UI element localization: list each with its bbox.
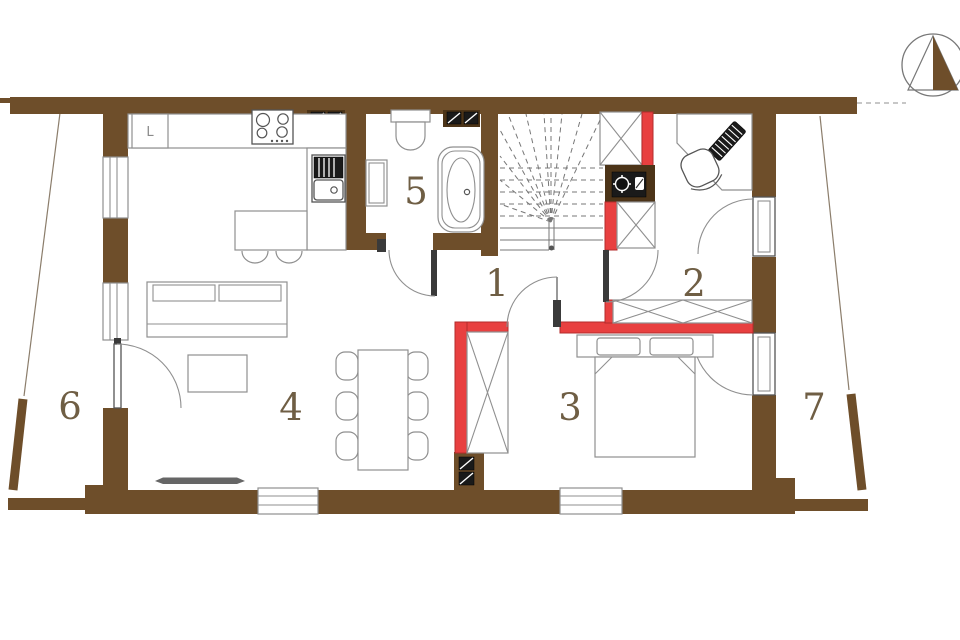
bathroom-door xyxy=(389,250,437,296)
north-arrow-icon xyxy=(902,34,960,96)
dining-chair xyxy=(336,352,358,380)
dining-table xyxy=(358,350,408,470)
dining-set xyxy=(336,350,428,470)
dining-chair xyxy=(406,392,428,420)
vent-block-bottom xyxy=(454,452,484,490)
bathroom-door-leaf xyxy=(431,250,437,296)
dining-chair xyxy=(406,432,428,460)
right-wall-lower xyxy=(752,395,776,478)
living-dining-area xyxy=(147,282,428,484)
bed-body xyxy=(595,357,695,457)
left-wall-lower xyxy=(103,408,128,490)
dining-chair xyxy=(336,432,358,460)
window-left-lower xyxy=(103,283,128,340)
door-jamb xyxy=(553,300,561,327)
door-hall-to-bedroom3 xyxy=(507,277,561,327)
dining-chair xyxy=(336,392,358,420)
room-label-7: 7 xyxy=(802,386,826,429)
top-wall xyxy=(10,97,857,114)
door-arc xyxy=(507,277,557,327)
door-arc xyxy=(606,250,658,302)
window-bottom-living xyxy=(258,488,318,514)
kitchen-area: L xyxy=(128,110,346,263)
room-label-1: 1 xyxy=(485,262,509,305)
terrace-right-wall-bottom xyxy=(795,499,868,511)
kitchen-sink xyxy=(312,155,345,202)
terrace-left-wall-slant xyxy=(13,399,23,490)
red-stub-room2-wardrobe xyxy=(605,300,613,323)
washbasin xyxy=(366,160,387,206)
terrace-right-walls xyxy=(795,116,868,511)
boiler-unit xyxy=(605,165,655,202)
wardrobe-bedroom3 xyxy=(467,332,508,453)
top-wall-stub xyxy=(0,98,10,103)
pillow xyxy=(650,338,693,355)
room-label-2: 2 xyxy=(682,262,706,305)
toilet xyxy=(391,110,430,150)
entry-door-leaf xyxy=(114,344,121,408)
room-label-4: 4 xyxy=(279,386,303,429)
room-label-3: 3 xyxy=(558,386,582,429)
office-area xyxy=(677,114,752,195)
left-wall-mid xyxy=(103,218,128,283)
sofa xyxy=(147,282,287,337)
bathtub xyxy=(438,147,484,232)
red-wall-shaft-lower xyxy=(605,202,617,250)
window-bottom-bedroom xyxy=(560,488,622,514)
door-leaf xyxy=(603,250,609,302)
corner-block-bottom-right xyxy=(752,478,795,514)
left-wall-upper xyxy=(103,114,128,157)
bar-stool xyxy=(276,251,302,263)
room-label-6: 6 xyxy=(58,385,82,428)
dining-chair xyxy=(406,352,428,380)
kitchen-peninsula xyxy=(235,211,307,250)
kitchen-bath-wall xyxy=(346,114,366,240)
right-wall-upper xyxy=(752,114,776,197)
bar-stool xyxy=(242,251,268,263)
sink-bowl xyxy=(314,180,343,200)
stair-newel-post xyxy=(549,246,554,251)
red-wall-wardrobe-left xyxy=(455,322,467,453)
entry-door-swing-arc xyxy=(117,344,181,408)
coffee-table xyxy=(188,355,247,392)
bottom-wall xyxy=(85,490,795,514)
bedroom-area xyxy=(577,335,713,457)
terrace-left-site-line xyxy=(24,113,60,396)
terrace-door-room2 xyxy=(698,197,775,256)
door-hall-to-room2 xyxy=(603,250,658,302)
window-left-upper xyxy=(103,157,128,218)
bathroom-door-arc xyxy=(389,250,435,296)
fridge: L xyxy=(132,114,168,148)
red-wall-room2-room3 xyxy=(560,322,753,333)
terrace-door-room2-arc xyxy=(698,199,753,254)
terrace-left-walls xyxy=(8,113,87,510)
staircase xyxy=(500,114,603,251)
terrace-right-site-line xyxy=(820,116,849,390)
vent-box-bathroom xyxy=(443,110,480,127)
terrace-right-wall-slant xyxy=(851,394,862,490)
pillow xyxy=(597,338,640,355)
terrace-left-wall-bottom xyxy=(8,498,87,510)
cooktop-icon xyxy=(252,110,293,144)
tv-sideboard xyxy=(155,478,245,485)
fridge-label: L xyxy=(146,125,154,140)
red-wall-shaft-upper xyxy=(642,112,653,167)
floor-plan-canvas: L xyxy=(0,0,960,640)
bath-door-jamb-left xyxy=(377,239,386,252)
right-wall-mid xyxy=(752,257,776,333)
entry-door-left xyxy=(114,338,181,408)
floor-plan-drawing: L xyxy=(0,0,960,640)
room-label-5: 5 xyxy=(404,170,428,213)
